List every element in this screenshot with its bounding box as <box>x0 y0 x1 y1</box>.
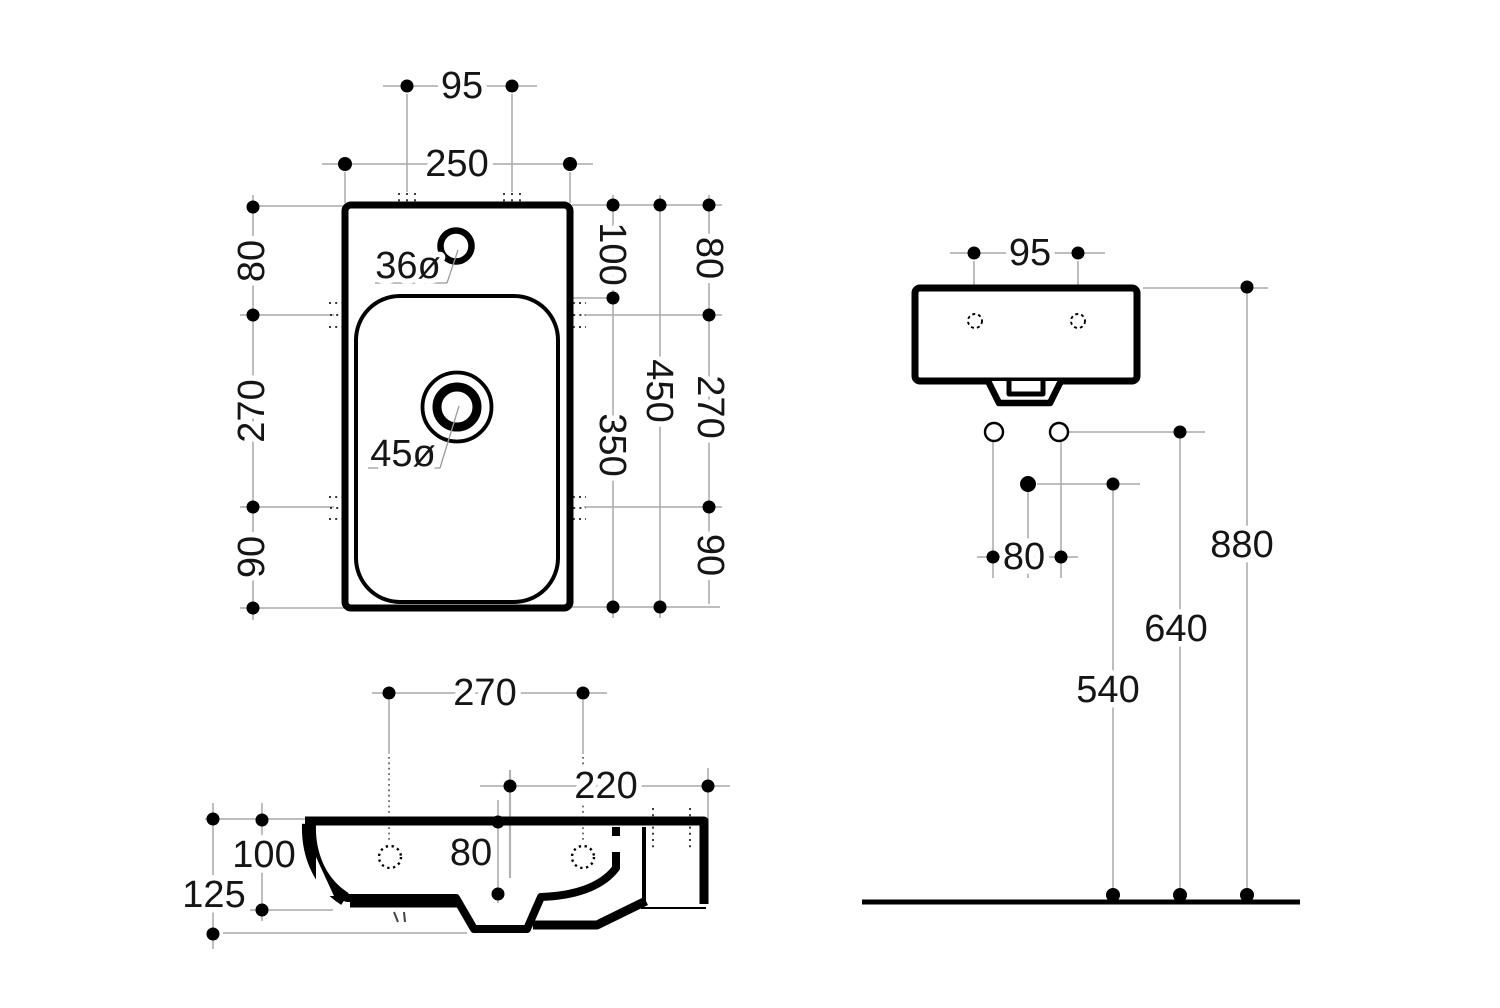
dim-label-drain-height: 540 <box>1076 669 1139 711</box>
dim-label-hole-spacing: 95 <box>441 65 483 107</box>
side-basin-profile <box>305 821 706 931</box>
washbasin-dimension-drawing: 95 250 80 270 90 100 350 450 80 270 90 3… <box>0 0 1500 1008</box>
supply-connection-left <box>985 423 1003 441</box>
dim-label-bowl-length: 350 <box>591 413 633 476</box>
dim-label-drain-dia: 45ø <box>370 433 435 475</box>
siphon-cover-inner <box>1009 381 1043 394</box>
dim-label-left-top: 80 <box>231 240 273 282</box>
side-view: 270 220 80 100 125 <box>182 672 730 949</box>
dim-label-overall-length: 450 <box>638 359 680 422</box>
dim-label-outer-width: 250 <box>425 143 488 185</box>
waste-pipe <box>533 901 646 925</box>
dim-label-front-height: 100 <box>232 834 295 876</box>
dim-label-supply-height: 640 <box>1144 608 1207 650</box>
front-basin-outline <box>915 288 1137 381</box>
front-view: 95 80 540 640 880 <box>862 232 1300 902</box>
bottom-ticks <box>394 912 405 922</box>
overflow-slot <box>609 836 623 852</box>
technical-drawing-sheet: 95 250 80 270 90 100 350 450 80 270 90 3… <box>0 0 1500 1008</box>
dim-label-overall-height: 125 <box>182 874 245 916</box>
dim-label-left-bottom: 90 <box>231 536 273 578</box>
dim-label-trap-offset: 220 <box>574 765 637 807</box>
supply-connection-right <box>1050 423 1068 441</box>
dim-label-bowl-depth: 80 <box>450 832 492 874</box>
hidden-fixing-hole-left <box>379 846 401 868</box>
dim-label-right-bottom: 90 <box>689 534 731 576</box>
hidden-fixing-hole-right <box>572 846 594 868</box>
dim-label-right-span: 270 <box>689 375 731 438</box>
drain-connection <box>1020 476 1036 492</box>
dim-label-rim-height: 880 <box>1210 524 1273 566</box>
dim-label-supply-spacing: 80 <box>1003 536 1045 578</box>
dim-label-faucet-dia: 36ø <box>375 245 440 287</box>
plan-view: 95 250 80 270 90 100 350 450 80 270 90 3… <box>231 65 731 620</box>
dim-label-left-span: 270 <box>231 379 273 442</box>
dim-label-rim-to-bowl: 100 <box>591 222 633 285</box>
dim-label-depth-spacing: 270 <box>453 672 516 714</box>
dim-label-right-top: 80 <box>688 237 730 279</box>
dim-label-front-hole-spacing: 95 <box>1009 232 1051 274</box>
